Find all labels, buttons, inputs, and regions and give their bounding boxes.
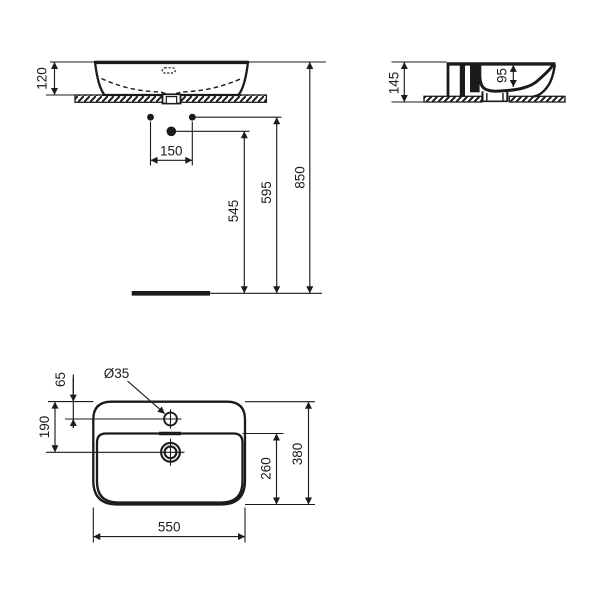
dim-overall-width-label: 550 bbox=[158, 520, 181, 535]
side-view: 145 95 bbox=[386, 62, 565, 102]
bowl-left-wall-section bbox=[470, 65, 480, 93]
dim-basin-height-label: 120 bbox=[35, 67, 50, 90]
dim-bowl-depth-label: 95 bbox=[494, 68, 509, 83]
front-view: 120 150 545 595 850 bbox=[35, 62, 327, 293]
dim-holes-height-label: 595 bbox=[259, 181, 274, 204]
basin-front-outline bbox=[95, 62, 248, 95]
fixing-hole-left-dot bbox=[147, 114, 154, 121]
dim-bowl-length-label: 260 bbox=[259, 457, 274, 480]
countertop-front-right bbox=[180, 95, 266, 102]
dim-tap-hole-diameter-label: Ø35 bbox=[104, 366, 130, 381]
technical-drawing: 120 150 545 595 850 145 bbox=[0, 0, 603, 603]
dim-outlet-height-label: 545 bbox=[226, 200, 241, 223]
dim-rim-height-label: 850 bbox=[292, 166, 307, 189]
dim-drain-offset-label: 190 bbox=[37, 416, 52, 439]
dim-overall-height-label: 145 bbox=[386, 72, 401, 95]
overflow-channel-wall bbox=[460, 65, 465, 97]
drawing-canvas: 120 150 545 595 850 145 bbox=[0, 0, 603, 603]
dim-tap-offset-label: 65 bbox=[53, 372, 68, 387]
countertop-side-right bbox=[509, 96, 565, 102]
dim-hole-spacing-label: 150 bbox=[160, 144, 183, 159]
waste-fitting-front-inner bbox=[166, 97, 176, 104]
dim-overall-depth-label: 380 bbox=[290, 443, 305, 466]
top-view: Ø35 65 190 380 260 550 bbox=[37, 366, 315, 543]
bowl-bottom-curve bbox=[480, 65, 553, 91]
countertop-front-left bbox=[75, 95, 163, 102]
countertop-side-left bbox=[424, 96, 482, 102]
